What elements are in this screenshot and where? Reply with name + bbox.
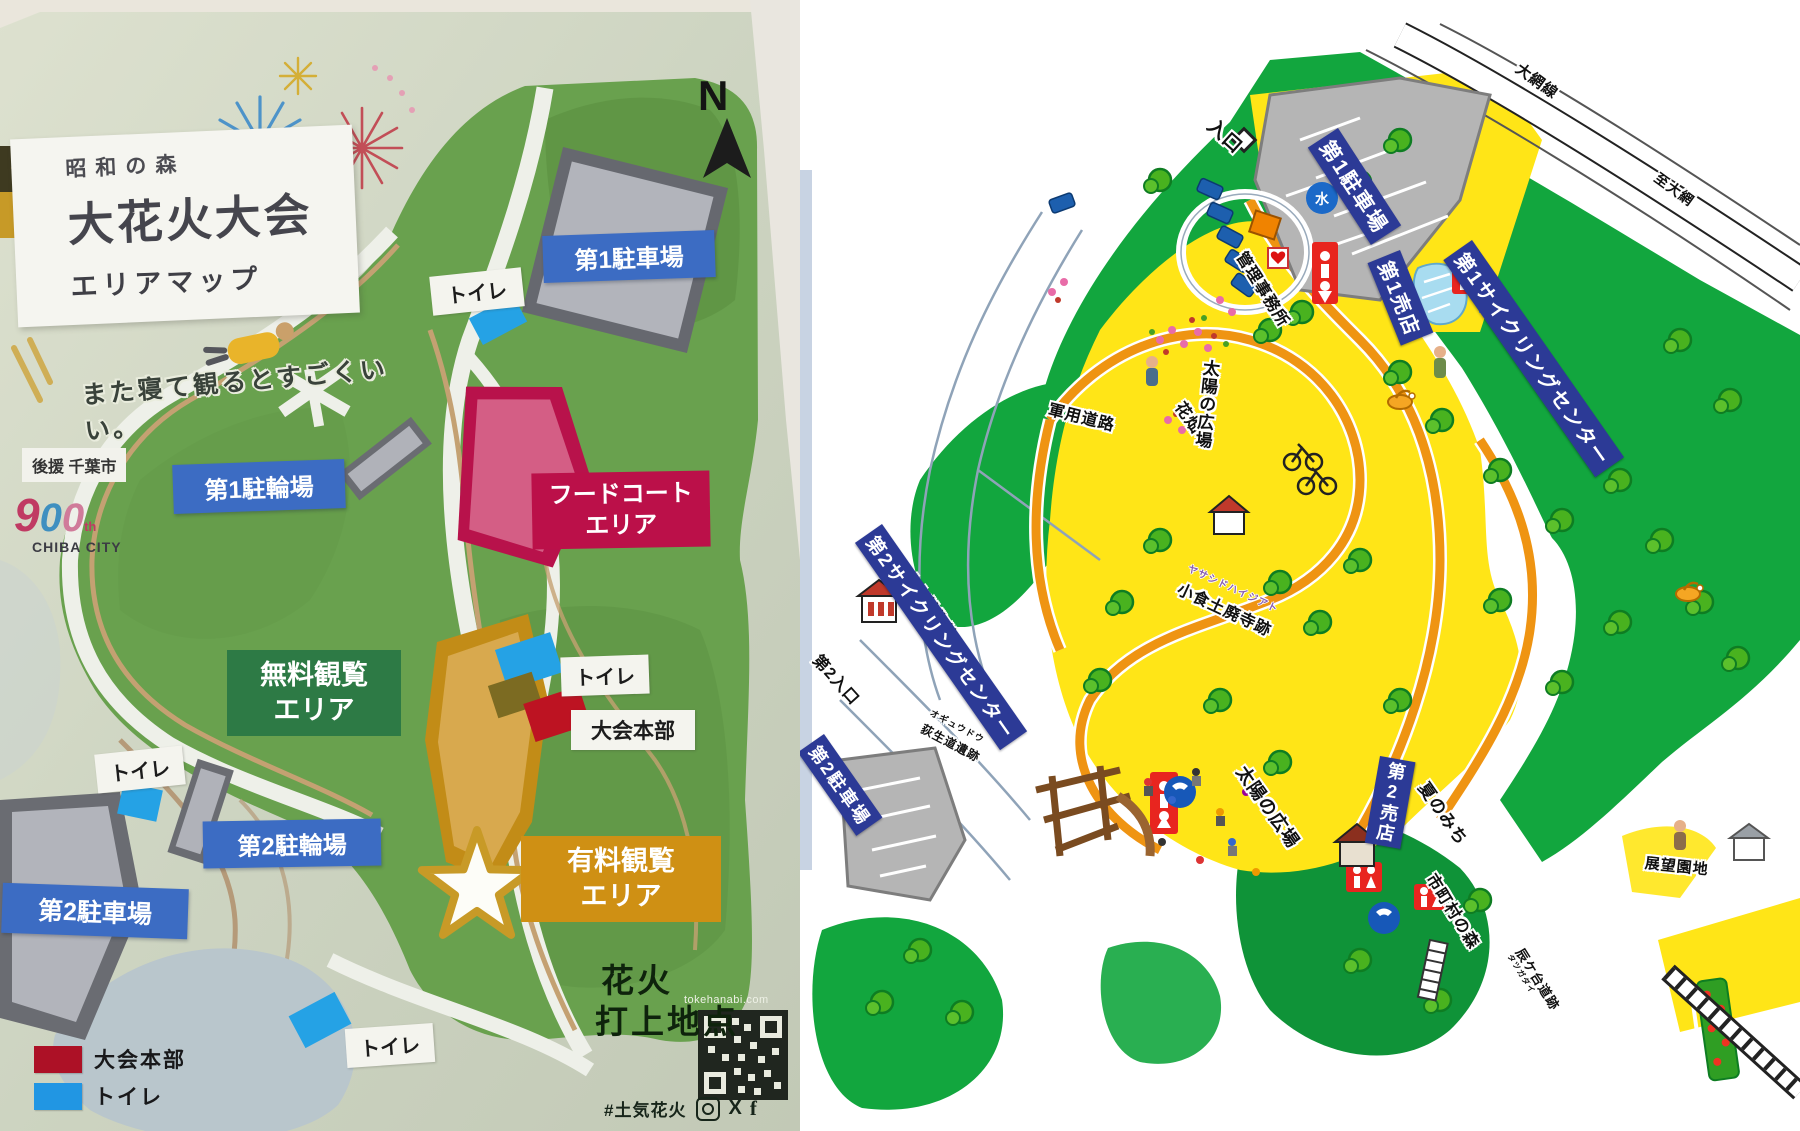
hashtag-label: #土気花火 <box>604 1096 686 1121</box>
instagram-lens <box>702 1103 714 1115</box>
legend-label-hq: 大会本部 <box>94 1044 186 1074</box>
map-legend: 大会本部 トイレ <box>34 1044 186 1118</box>
facebook-icon: f <box>750 1096 757 1121</box>
social-row: #土気花火 X f <box>604 1096 757 1121</box>
banner-paid-viewing-area: 有料観覧 エリア <box>521 836 721 922</box>
park-guide-map: 水 <box>800 0 1800 1131</box>
phone-icon <box>1164 776 1196 808</box>
anniv-th: th <box>84 519 96 534</box>
anniv-digit: 0 <box>40 496 62 540</box>
legend-swatch-hq <box>34 1046 82 1073</box>
food-court-line1: フードコート <box>531 477 710 511</box>
legend-row-toilet: トイレ <box>34 1081 186 1111</box>
toilet-label: トイレ <box>560 654 649 696</box>
banner-parking2: 第2駐車場 <box>1 883 189 939</box>
hq-label: 大会本部 <box>571 710 695 750</box>
mascot-leg <box>203 347 227 354</box>
launch-line2: 打上地点 <box>595 1001 739 1042</box>
title-card: 昭和の森 大花火大会 エリアマップ <box>10 125 360 328</box>
legend-row-hq: 大会本部 <box>34 1044 186 1074</box>
legend-label-toilet: トイレ <box>94 1081 163 1111</box>
anniv-digit: 9 <box>14 489 40 541</box>
paid-area-line2: エリア <box>521 879 721 914</box>
banner-food-court: フードコート エリア <box>531 470 710 549</box>
supporter-label: 後援 千葉市 <box>22 448 126 482</box>
svg-text:水: 水 <box>1315 191 1330 207</box>
chiba-900th-logo: 900th CHIBA CITY <box>14 492 154 554</box>
poster-title-main: 大花火大会 <box>66 177 347 255</box>
banner-bike-parking1: 第1駐輪場 <box>172 459 346 514</box>
paid-area-line1: 有料観覧 <box>521 844 721 879</box>
banner-bike-parking2: 第2駐輪場 <box>203 818 382 868</box>
park-map-graphic: 水 <box>800 0 1800 1131</box>
banner-free-viewing-area: 無料観覧 エリア <box>227 650 401 736</box>
x-icon: X <box>728 1097 741 1120</box>
anniv-digit: 0 <box>62 496 84 540</box>
north-letter: N <box>698 72 728 120</box>
poster-title-top: 昭和の森 <box>65 141 344 183</box>
wall-top <box>0 0 800 12</box>
free-area-line2: エリア <box>227 693 401 728</box>
toilet-label: トイレ <box>345 1023 436 1068</box>
food-court-line2: エリア <box>532 509 711 543</box>
fireworks-area-map-poster: ✹ 昭和の森 大花火大会 エリアマップ また寝て観るとすごくいい。 後援 千葉市… <box>0 0 800 1131</box>
phone-icon <box>1368 902 1400 934</box>
legend-swatch-toilet <box>34 1083 82 1110</box>
anniv-city: CHIBA CITY <box>32 540 154 554</box>
instagram-icon <box>696 1097 720 1121</box>
poster-title-sub: エリアマップ <box>70 253 349 304</box>
toilet-icon <box>1312 242 1338 304</box>
two-map-collage: ✹ 昭和の森 大花火大会 エリアマップ また寝て観るとすごくいい。 後援 千葉市… <box>0 0 1800 1131</box>
banner-parking1: 第1駐車場 <box>542 230 716 283</box>
website-url: tokehanabi.com <box>684 994 769 1006</box>
free-area-line1: 無料観覧 <box>227 658 401 693</box>
